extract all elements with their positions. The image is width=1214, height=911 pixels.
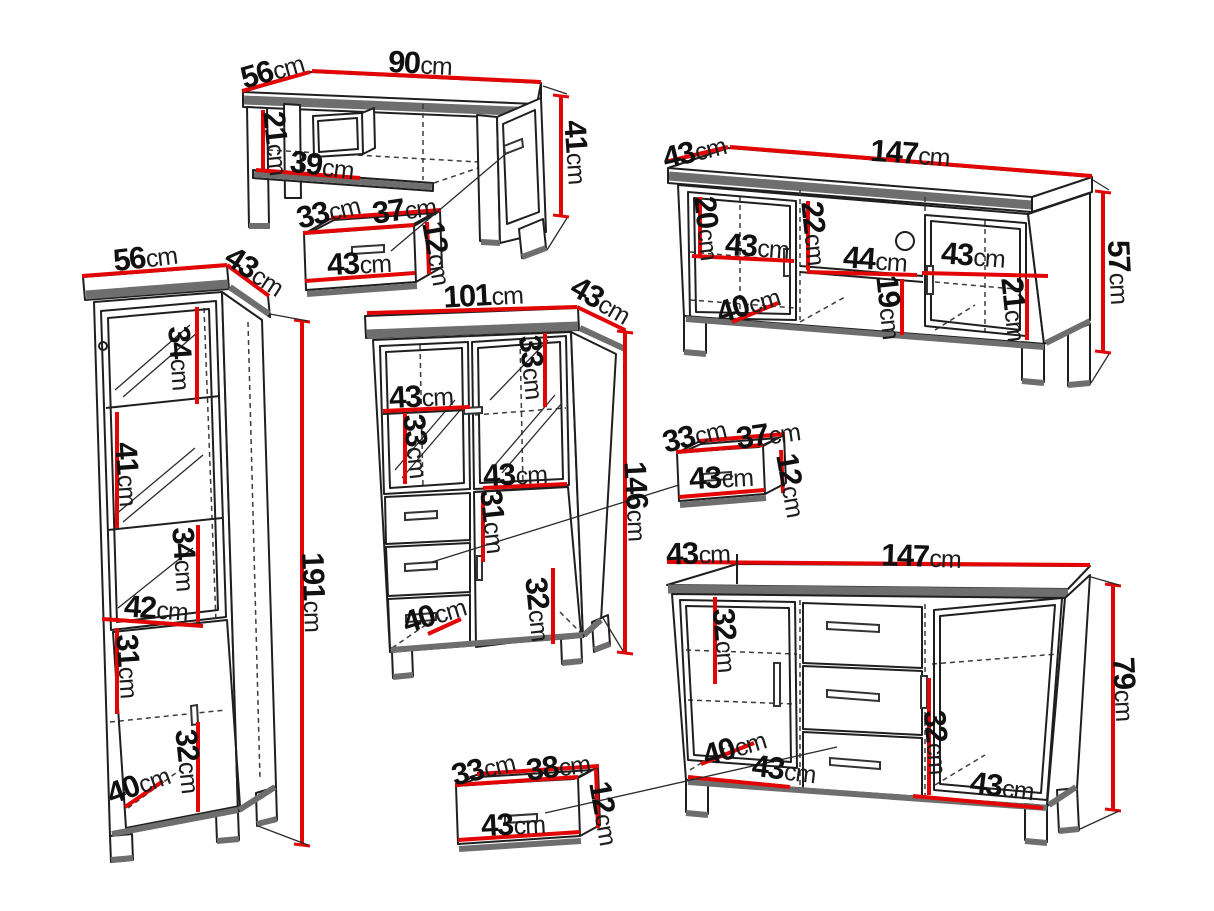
dim-glass-cabinet-drawer-section: 31cm bbox=[475, 488, 513, 555]
dim-sideboard-right-inner-height: 32cm bbox=[919, 709, 955, 775]
dim-tall-cabinet-fourth-section: 31cm bbox=[111, 633, 146, 699]
dim-tv-stand-mid-inner-height: 22cm bbox=[796, 200, 834, 267]
dim-drawer-box-2-front-width: 43cm bbox=[688, 460, 753, 494]
dim-tv-stand-height: 57cm bbox=[1103, 239, 1137, 304]
dim-glass-cabinet-mid-shelf-width: 43cm bbox=[482, 457, 547, 491]
dim-sideboard-width: 147cm bbox=[881, 539, 962, 573]
dim-glass-cabinet-height: 146cm bbox=[619, 460, 654, 541]
dim-sideboard-bottom-left-width: 43cm bbox=[750, 750, 817, 789]
dim-drawer-box-1-front-width: 43cm bbox=[326, 246, 391, 280]
dim-sideboard-bottom-right-width: 43cm bbox=[968, 767, 1035, 806]
dim-coffee-table-width: 90cm bbox=[387, 46, 452, 80]
dim-glass-cabinet-left-shelf-width: 43cm bbox=[388, 379, 453, 413]
dim-tv-stand-right-inner-width: 43cm bbox=[940, 237, 1006, 272]
dim-tall-cabinet-height: 191cm bbox=[297, 552, 331, 633]
dim-tv-stand-left-inner-width: 43cm bbox=[724, 228, 790, 263]
dim-glass-cabinet-width: 101cm bbox=[442, 277, 523, 312]
dim-tv-stand-mid-inner-width: 44cm bbox=[842, 241, 908, 276]
dim-sideboard-depth: 43cm bbox=[666, 536, 731, 569]
dim-tall-cabinet-bottom-section: 32cm bbox=[170, 728, 208, 795]
dim-tv-stand-right-lower-height: 21cm bbox=[996, 276, 1034, 343]
dim-glass-cabinet-right-section: 33cm bbox=[514, 334, 552, 401]
dim-tall-cabinet-width: 56cm bbox=[111, 238, 178, 277]
dim-tv-stand-mid-lower-height: 19cm bbox=[871, 274, 909, 341]
dim-sideboard-left-inner-height: 32cm bbox=[708, 607, 744, 673]
dim-coffee-table-inner-width: 39cm bbox=[288, 146, 355, 185]
sideboard-drawing bbox=[667, 554, 1121, 843]
dim-glass-cabinet-left-section: 33cm bbox=[398, 413, 436, 480]
dim-sideboard-height: 79cm bbox=[1108, 656, 1142, 721]
dim-tall-cabinet-inner-width: 42cm bbox=[123, 590, 189, 625]
dim-coffee-table-height: 41cm bbox=[559, 119, 594, 185]
dim-tall-cabinet-top-section: 34cm bbox=[163, 325, 198, 391]
dim-tall-cabinet-second-section: 41cm bbox=[110, 441, 145, 507]
dim-tv-stand-left-inner-height: 20cm bbox=[689, 195, 727, 262]
dim-drawer-box-3-front-width: 43cm bbox=[480, 807, 545, 841]
furniture-dimension-diagram: 56cm 90cm 41cm 21cm 39cm 33cm 37cm 43cm … bbox=[0, 0, 1214, 911]
dim-tall-cabinet-third-section: 34cm bbox=[167, 526, 202, 592]
dim-glass-cabinet-bottom-section: 32cm bbox=[520, 576, 558, 643]
dim-tv-stand-width: 147cm bbox=[869, 135, 951, 171]
